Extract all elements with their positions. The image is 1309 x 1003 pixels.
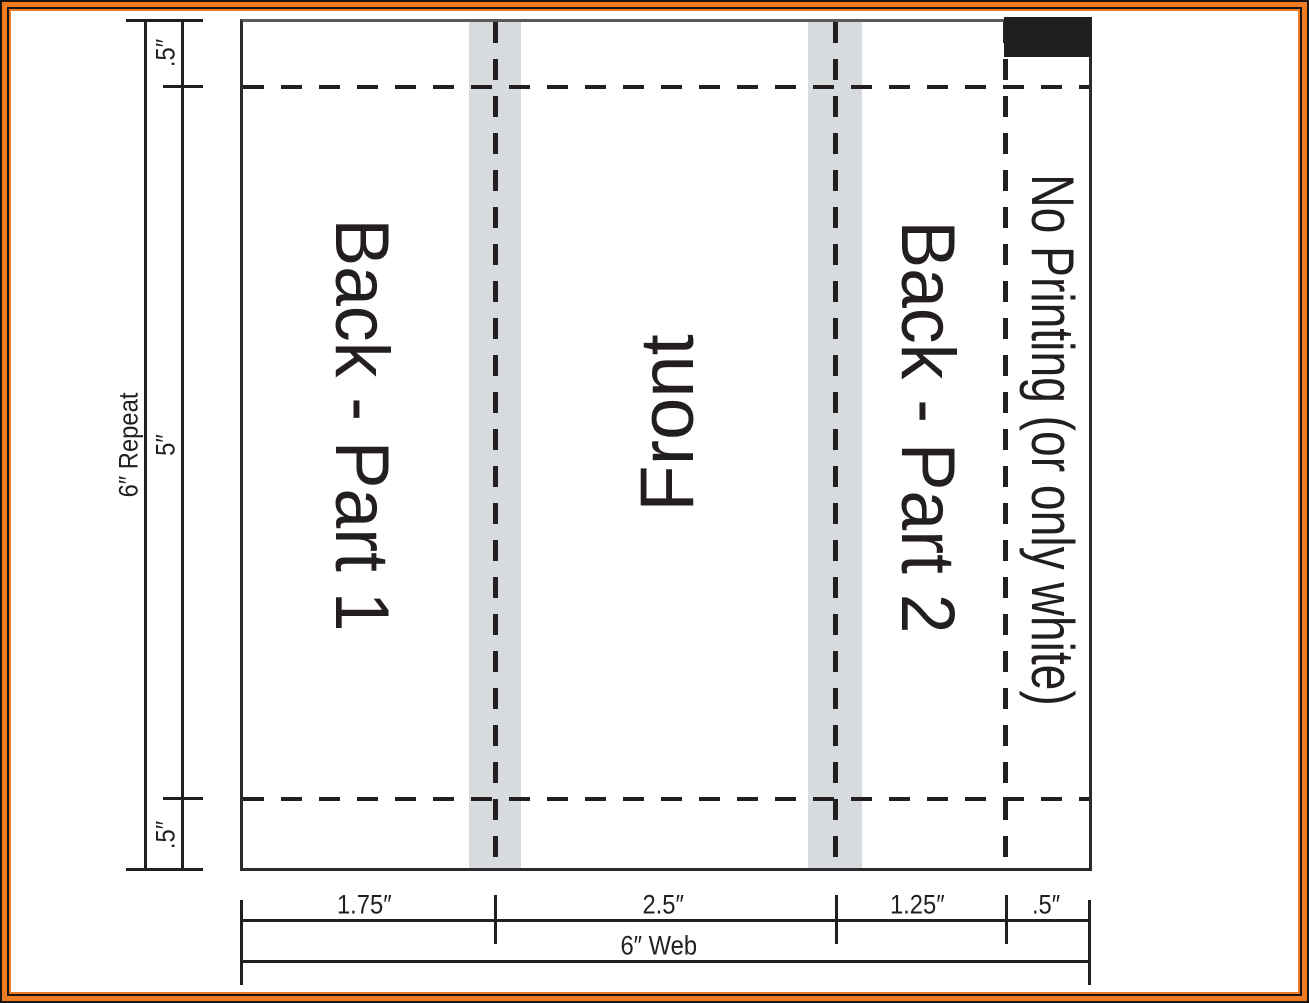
web-dim-tick-mid-2 <box>835 895 838 944</box>
fold-line-vertical-2 <box>833 22 838 868</box>
panel-no-printing-label: No Printing (or only white) <box>1022 174 1082 706</box>
fold-line-vertical-1 <box>493 22 498 868</box>
web-segment-4-label: .5″ <box>1032 892 1060 919</box>
web-total-label: 6″ Web <box>620 933 697 960</box>
web-dim-tick-mid-1 <box>494 895 497 944</box>
repeat-dim-tick-bottom <box>126 868 203 871</box>
fold-line-horizontal-top <box>243 85 1089 89</box>
repeat-dim-line-inner <box>181 19 184 871</box>
repeat-total-label: 6″ Repeat <box>116 393 143 498</box>
web-dim-tick-mid-3 <box>1005 895 1008 944</box>
panel-back-part-2-label: Back - Part 2 <box>889 221 965 634</box>
web-dim-tick-left <box>240 900 243 985</box>
fold-line-vertical-3 <box>1003 22 1008 868</box>
web-dim-tick-right <box>1088 900 1091 985</box>
repeat-segment-top-label: .5″ <box>153 39 180 67</box>
repeat-dim-tick-top <box>126 19 203 22</box>
web-segment-2-label: 2.5″ <box>642 892 683 919</box>
repeat-dim-tick-fold-top <box>163 85 203 88</box>
fold-line-horizontal-bottom <box>243 797 1089 801</box>
web-segment-3-label: 1.25″ <box>890 892 945 919</box>
eye-mark-rectangle <box>1004 17 1092 57</box>
repeat-segment-bottom-label: .5″ <box>153 821 180 849</box>
panel-front-label: Front <box>630 334 706 511</box>
template-diagram-page: 6″ Repeat .5″ 5″ .5″ 1.75″ 2.5″ 1.25″ .5… <box>0 0 1309 1003</box>
repeat-dim-tick-fold-bottom <box>163 797 203 800</box>
repeat-segment-middle-label: 5″ <box>153 434 180 456</box>
repeat-dim-line-outer <box>144 19 147 871</box>
web-segment-1-label: 1.75″ <box>337 892 392 919</box>
panel-back-part-1-label: Back - Part 1 <box>323 219 399 632</box>
